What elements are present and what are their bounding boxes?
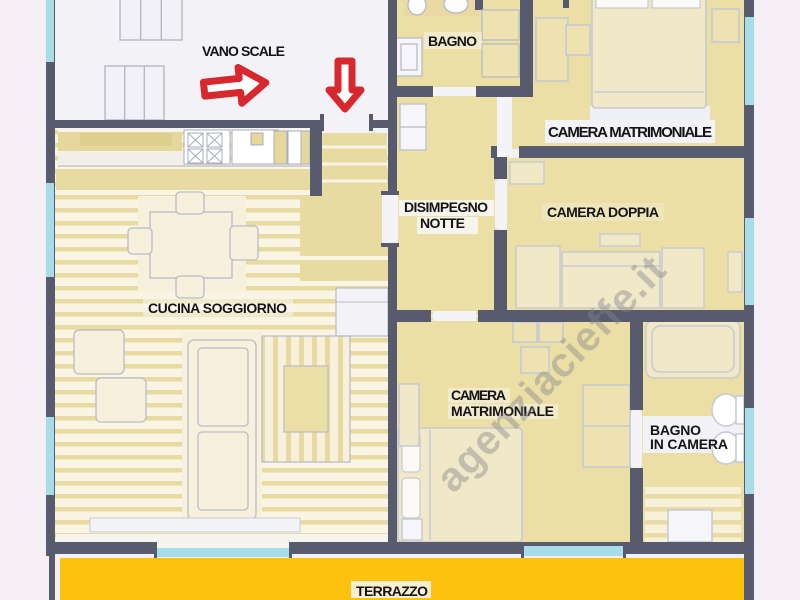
- svg-text:CAMERA DOPPIA: CAMERA DOPPIA: [547, 204, 659, 220]
- svg-text:VANO SCALE: VANO SCALE: [202, 43, 285, 59]
- svg-text:BAGNO: BAGNO: [428, 33, 477, 49]
- svg-text:TERRAZZO: TERRAZZO: [356, 583, 428, 599]
- svg-text:CUCINA SOGGIORNO: CUCINA SOGGIORNO: [148, 300, 287, 316]
- svg-text:NOTTE: NOTTE: [420, 215, 465, 231]
- svg-text:IN CAMERA: IN CAMERA: [650, 436, 728, 452]
- svg-text:DISIMPEGNO: DISIMPEGNO: [404, 199, 488, 215]
- svg-text:CAMERA MATRIMONIALE: CAMERA MATRIMONIALE: [548, 124, 712, 141]
